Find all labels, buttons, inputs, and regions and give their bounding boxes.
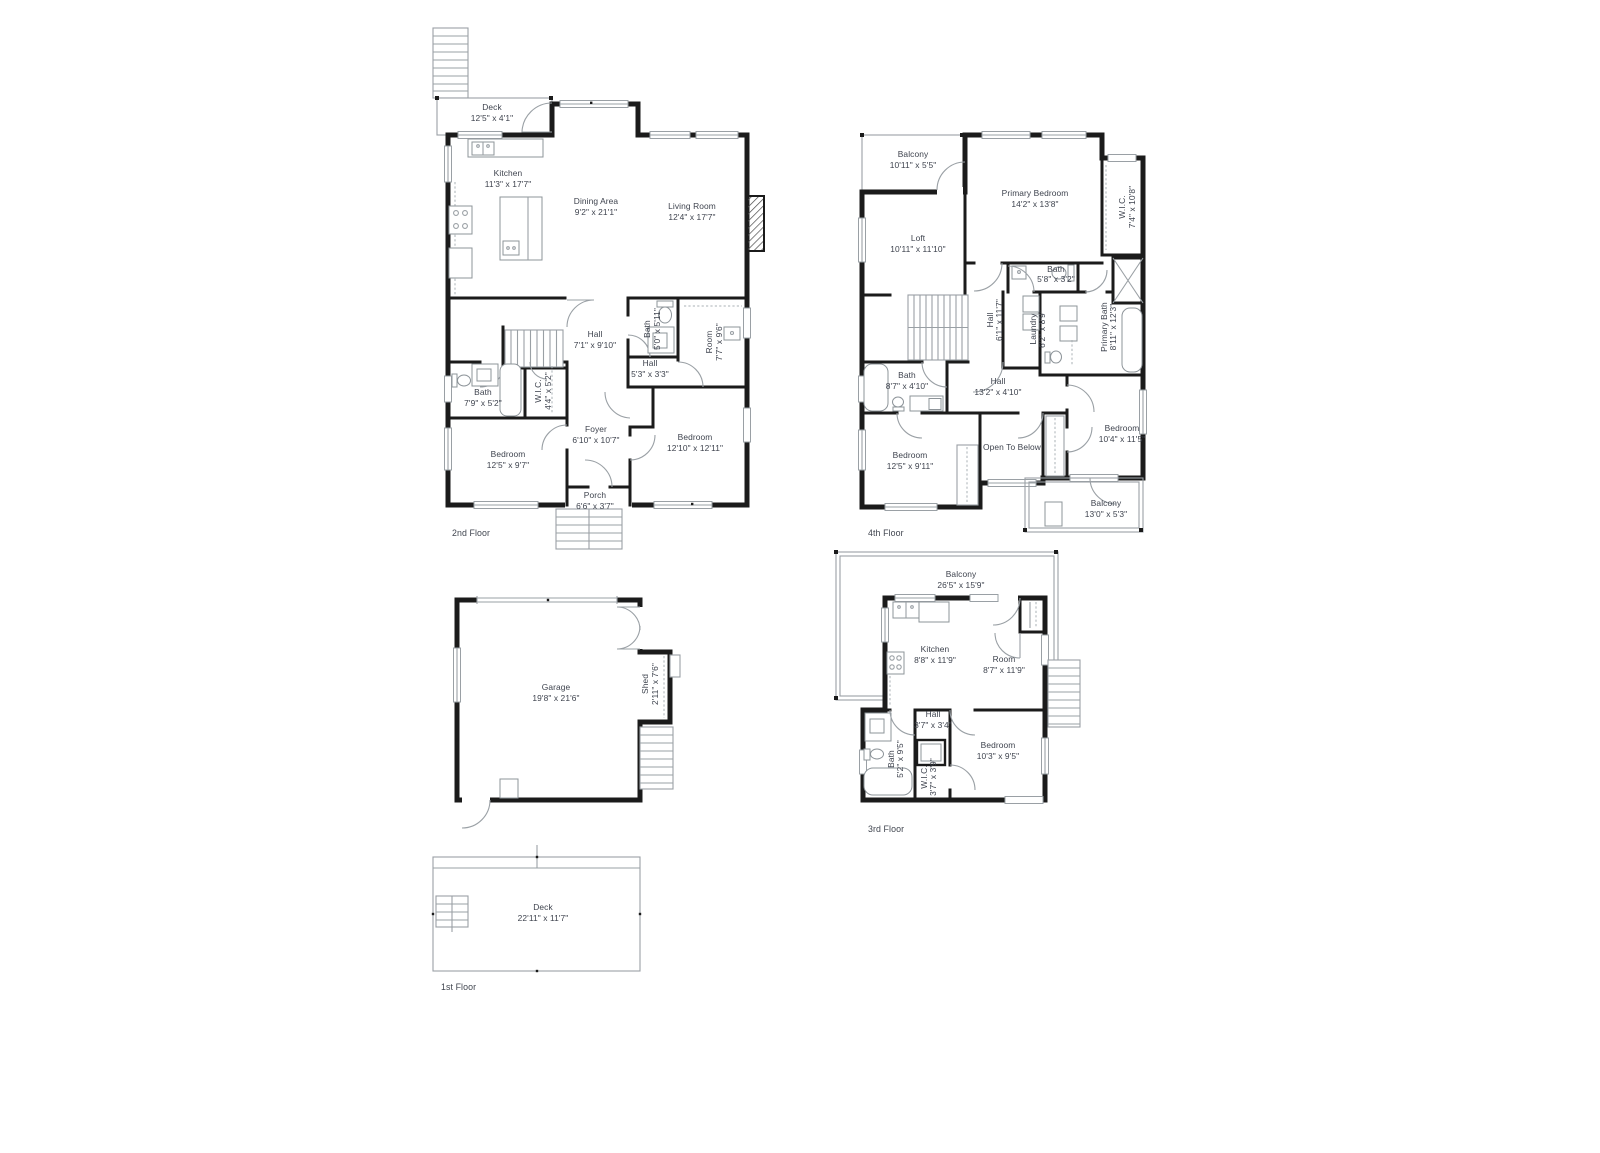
floor-3-plan: Balcony26'5" x 15'9" Kitchen8'8" x 11'9"… — [834, 550, 1080, 834]
svg-text:W.I.C.: W.I.C. — [533, 379, 543, 402]
svg-text:12'5" x 9'11": 12'5" x 9'11" — [887, 461, 934, 471]
floor-1-plan: Deck 22'11" x 11'7" 1st Floor — [432, 845, 641, 992]
svg-text:5'8" x 3'2": 5'8" x 3'2" — [1037, 274, 1075, 284]
svg-text:6'10" x 10'7": 6'10" x 10'7" — [572, 435, 619, 445]
svg-text:Hall: Hall — [643, 358, 658, 368]
label-primary-bath: Primary Bath8'11" x 12'3" — [1099, 302, 1118, 352]
svg-text:10'3" x 9'5": 10'3" x 9'5" — [977, 751, 1019, 761]
svg-text:Bath: Bath — [898, 370, 916, 380]
svg-text:Deck: Deck — [533, 902, 553, 912]
svg-text:Porch: Porch — [584, 490, 607, 500]
label-dining-area: Dining Area9'2" x 21'1" — [574, 196, 619, 217]
svg-text:22'11" x 11'7": 22'11" x 11'7" — [518, 913, 569, 923]
svg-text:6'1" x 11'7": 6'1" x 11'7" — [994, 299, 1004, 341]
svg-text:Room: Room — [993, 654, 1016, 664]
stairs-icon — [1048, 660, 1080, 727]
svg-text:Room: Room — [704, 331, 714, 354]
svg-text:13'0" x 5'3": 13'0" x 5'3" — [1085, 509, 1127, 519]
svg-text:10'11" x 5'5": 10'11" x 5'5" — [890, 160, 937, 170]
svg-text:Balcony: Balcony — [898, 149, 929, 159]
label-bedroom-br: Bedroom10'4" x 11'5" — [1099, 423, 1146, 444]
svg-text:Kitchen: Kitchen — [921, 644, 950, 654]
utility-box — [500, 779, 518, 798]
stairs-icon — [436, 896, 468, 932]
label-bedroom: Bedroom10'3" x 9'5" — [977, 740, 1019, 761]
floor-4-plan: Balcony10'11" x 5'5" Primary Bedroom14'2… — [859, 132, 1147, 539]
stairs-icon — [505, 330, 563, 367]
svg-text:12'4" x 17'7": 12'4" x 17'7" — [668, 212, 715, 222]
svg-text:Hall: Hall — [991, 376, 1006, 386]
floor1-title: 1st Floor — [441, 982, 476, 992]
svg-text:Deck: Deck — [482, 102, 502, 112]
svg-text:Primary Bedroom: Primary Bedroom — [1002, 188, 1069, 198]
svg-text:Bath: Bath — [1047, 264, 1065, 274]
label-bedroom-left: Bedroom12'5" x 9'7" — [487, 449, 529, 470]
svg-text:Loft: Loft — [911, 233, 926, 243]
svg-text:19'8" x 21'6": 19'8" x 21'6" — [532, 693, 579, 703]
svg-text:9'2" x 21'1": 9'2" x 21'1" — [575, 207, 617, 217]
svg-text:6'2" x 8'9": 6'2" x 8'9" — [1037, 310, 1047, 348]
svg-text:Bedroom: Bedroom — [678, 432, 713, 442]
svg-text:Bath: Bath — [474, 387, 492, 397]
svg-text:26'5" x 15'9": 26'5" x 15'9" — [937, 580, 984, 590]
svg-text:Shed: Shed — [640, 674, 650, 694]
svg-text:Living Room: Living Room — [668, 201, 716, 211]
svg-text:8'7" x 4'10": 8'7" x 4'10" — [886, 381, 928, 391]
deck-stairs-icon — [433, 28, 468, 98]
svg-text:12'5" x 4'1": 12'5" x 4'1" — [471, 113, 513, 123]
svg-text:6'6" x 3'7": 6'6" x 3'7" — [576, 501, 614, 511]
label-open-to-below: Open To Below — [983, 442, 1042, 452]
svg-text:8'7" x 11'9": 8'7" x 11'9" — [983, 665, 1025, 675]
label-living-room: Living Room12'4" x 17'7" — [668, 201, 716, 222]
svg-text:8'11" x 12'3": 8'11" x 12'3" — [1108, 304, 1118, 351]
svg-text:Garage: Garage — [542, 682, 571, 692]
floor-plan-sheet: Deck12'5" x 4'1" Kitchen11'3" x 17'7" Di… — [0, 0, 1600, 1153]
svg-text:5'3" x 3'3": 5'3" x 3'3" — [631, 369, 669, 379]
svg-text:Bedroom: Bedroom — [893, 450, 928, 460]
shed-landing — [670, 655, 680, 677]
svg-text:Bedroom: Bedroom — [1105, 423, 1140, 433]
svg-text:Balcony: Balcony — [946, 569, 977, 579]
svg-text:Bedroom: Bedroom — [981, 740, 1016, 750]
svg-text:Bedroom: Bedroom — [491, 449, 526, 459]
floor4-title: 4th Floor — [868, 528, 904, 538]
label-primary-bedroom: Primary Bedroom14'2" x 13'8" — [1002, 188, 1069, 209]
svg-text:3'7" x 3'9": 3'7" x 3'9" — [928, 758, 938, 796]
stairs-icon — [908, 295, 968, 360]
svg-text:Dining Area: Dining Area — [574, 196, 619, 206]
svg-text:Bath: Bath — [642, 320, 652, 338]
garage-plan: Garage19'8" x 21'6" Shed2'11" x 7'6" — [454, 595, 681, 828]
svg-text:4'4" x 5'2": 4'4" x 5'2" — [543, 372, 553, 410]
svg-text:14'2" x 13'8": 14'2" x 13'8" — [1011, 199, 1058, 209]
svg-text:5'2" x 9'5": 5'2" x 9'5" — [895, 740, 905, 778]
floor2-title: 2nd Floor — [452, 528, 490, 538]
label-bedroom-bl: Bedroom12'5" x 9'11" — [887, 450, 934, 471]
svg-text:7'4" x 10'8": 7'4" x 10'8" — [1127, 186, 1137, 228]
floor3-title: 3rd Floor — [868, 824, 904, 834]
floor-plan-canvas: Deck12'5" x 4'1" Kitchen11'3" x 17'7" Di… — [0, 0, 1600, 1153]
label-balcony-bottom: Balcony13'0" x 5'3" — [1085, 498, 1127, 519]
svg-text:Balcony: Balcony — [1091, 498, 1122, 508]
svg-text:2'11" x 7'6": 2'11" x 7'6" — [650, 663, 660, 705]
label-balcony: Balcony26'5" x 15'9" — [937, 569, 984, 590]
balcony-bottom-outline — [1023, 478, 1143, 532]
svg-text:5'0" x 5'11": 5'0" x 5'11" — [652, 308, 662, 350]
svg-text:12'5" x 9'7": 12'5" x 9'7" — [487, 460, 529, 470]
svg-text:10'11" x 11'10": 10'11" x 11'10" — [890, 244, 946, 254]
svg-text:7'1" x 9'10": 7'1" x 9'10" — [574, 340, 616, 350]
fireplace-icon — [747, 196, 764, 251]
floor-2-plan: Deck12'5" x 4'1" Kitchen11'3" x 17'7" Di… — [433, 28, 764, 549]
svg-text:Kitchen: Kitchen — [494, 168, 523, 178]
svg-text:13'2" x 4'10": 13'2" x 4'10" — [974, 387, 1021, 397]
svg-text:Foyer: Foyer — [585, 424, 607, 434]
svg-text:Hall: Hall — [588, 329, 603, 339]
svg-text:7'9" x 5'2": 7'9" x 5'2" — [464, 398, 502, 408]
porch-stairs-icon — [556, 509, 622, 549]
svg-text:Open To Below: Open To Below — [983, 442, 1042, 452]
stairs-icon — [640, 727, 673, 789]
svg-text:Hall: Hall — [926, 709, 941, 719]
svg-text:3'7" x 3'4": 3'7" x 3'4" — [914, 720, 952, 730]
svg-text:10'4" x 11'5": 10'4" x 11'5" — [1099, 434, 1146, 444]
svg-text:11'3" x 17'7": 11'3" x 17'7" — [485, 179, 532, 189]
label-laundry: Laundry6'2" x 8'9" — [1028, 310, 1047, 348]
svg-text:12'10" x 12'11": 12'10" x 12'11" — [667, 443, 723, 453]
svg-text:7'7" x 9'6": 7'7" x 9'6" — [714, 323, 724, 361]
svg-text:W.I.C.: W.I.C. — [1117, 195, 1127, 218]
svg-text:8'8" x 11'9": 8'8" x 11'9" — [914, 655, 956, 665]
